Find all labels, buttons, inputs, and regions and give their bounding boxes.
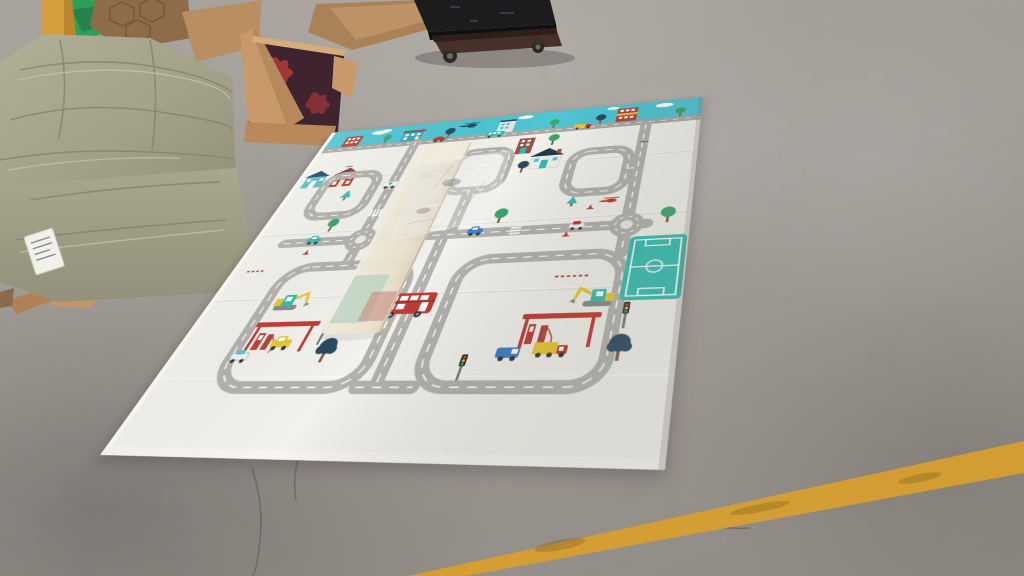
open-cardboard-box: [240, 28, 358, 146]
box-flap-bottom: [244, 122, 336, 146]
green-sacks: [0, 0, 262, 302]
platform-scale: [414, 0, 575, 68]
warehouse-scene: [0, 0, 1024, 576]
scale-shadow: [415, 48, 575, 68]
